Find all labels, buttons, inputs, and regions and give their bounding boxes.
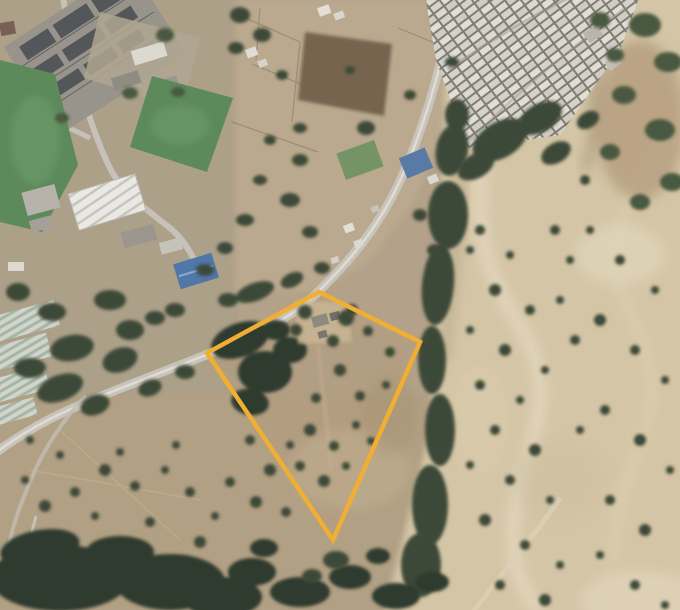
tree: [130, 481, 140, 491]
satellite-map-canvas: [0, 0, 680, 610]
tree: [645, 119, 675, 141]
tree: [185, 487, 195, 497]
tree: [651, 286, 659, 294]
tree: [253, 28, 271, 42]
satellite-image: [0, 0, 680, 610]
field-light-patch: [10, 95, 60, 185]
tree: [600, 144, 620, 160]
tree: [541, 366, 549, 374]
tree: [570, 335, 580, 345]
tree: [404, 90, 416, 100]
tree: [418, 326, 446, 394]
pale-patch: [515, 440, 605, 520]
building: [8, 262, 24, 271]
tree: [366, 548, 390, 564]
tree: [556, 296, 564, 304]
tree: [372, 583, 420, 609]
tree: [217, 242, 233, 254]
tree: [314, 262, 330, 274]
tree: [425, 394, 455, 466]
building: [0, 21, 16, 36]
tree: [230, 7, 250, 23]
tree: [529, 444, 541, 456]
tree: [171, 87, 185, 97]
tree: [302, 226, 318, 238]
tree: [576, 426, 584, 434]
tree: [280, 193, 300, 207]
tree: [499, 344, 511, 356]
tree: [490, 425, 500, 435]
tree: [318, 475, 330, 487]
tree: [270, 577, 330, 607]
tree: [55, 113, 69, 123]
tree: [38, 303, 66, 321]
tree: [304, 424, 316, 436]
tree: [539, 594, 551, 606]
tree: [630, 345, 640, 355]
tree: [327, 335, 339, 347]
tree: [14, 358, 46, 378]
tree: [413, 209, 427, 221]
tree: [311, 393, 321, 403]
tree: [629, 13, 661, 37]
tree: [94, 290, 126, 310]
tree: [329, 441, 339, 451]
tree: [250, 496, 262, 508]
tree: [357, 121, 375, 135]
tree: [495, 580, 505, 590]
tree: [525, 305, 535, 315]
tree: [630, 580, 640, 590]
tree: [116, 320, 144, 340]
tree: [466, 326, 474, 334]
tree: [253, 175, 267, 185]
tree: [39, 500, 51, 512]
tree: [546, 496, 554, 504]
tree: [56, 451, 64, 459]
tree: [334, 364, 346, 376]
tree: [666, 466, 674, 474]
tree: [245, 435, 255, 445]
tree: [550, 225, 560, 235]
tree: [466, 246, 474, 254]
tree: [428, 181, 468, 249]
tree: [594, 314, 606, 326]
tree: [302, 569, 322, 583]
tree: [385, 347, 395, 357]
tree: [276, 70, 288, 80]
tree: [228, 42, 244, 54]
tree: [86, 536, 154, 568]
tree: [218, 293, 238, 307]
tree: [99, 464, 111, 476]
tree: [298, 305, 312, 319]
tree: [516, 396, 524, 404]
tree: [21, 476, 29, 484]
tree: [479, 514, 491, 526]
tree: [323, 551, 349, 569]
tree: [175, 365, 195, 379]
tree: [445, 57, 459, 67]
tree: [566, 256, 574, 264]
tree: [165, 303, 185, 317]
tree: [580, 175, 590, 185]
tree: [161, 466, 169, 474]
tree: [606, 48, 624, 62]
tree: [590, 12, 610, 28]
tree: [415, 572, 449, 592]
tree: [264, 464, 276, 476]
tree: [605, 495, 615, 505]
tree: [639, 524, 651, 536]
tree: [475, 380, 485, 390]
tree: [600, 405, 610, 415]
tree: [250, 539, 278, 557]
tree: [172, 441, 180, 449]
tree: [145, 311, 165, 325]
tree: [6, 283, 30, 301]
tree: [70, 487, 80, 497]
tree: [489, 284, 501, 296]
tree: [382, 381, 390, 389]
tree: [286, 441, 294, 449]
tree: [475, 225, 485, 235]
tree: [661, 601, 669, 609]
tree: [293, 123, 307, 133]
tree: [122, 87, 138, 99]
tree: [281, 507, 291, 517]
tree: [196, 264, 214, 276]
tree: [292, 154, 308, 166]
tree: [556, 561, 564, 569]
tree: [630, 194, 650, 210]
tree: [363, 326, 373, 336]
tree: [586, 226, 594, 234]
tree: [352, 421, 360, 429]
tree: [211, 512, 219, 520]
tree: [634, 434, 646, 446]
tree: [228, 558, 276, 586]
tree: [355, 391, 365, 401]
tree: [194, 536, 206, 548]
tree: [661, 376, 669, 384]
tree: [91, 512, 99, 520]
tree: [156, 28, 174, 42]
tree: [412, 465, 448, 545]
tree: [116, 448, 124, 456]
tree: [345, 66, 355, 74]
tree: [236, 214, 254, 226]
tree: [506, 251, 514, 259]
tree: [505, 475, 515, 485]
tree: [520, 540, 530, 550]
tree: [145, 517, 155, 527]
tree: [225, 477, 235, 487]
tree: [615, 255, 625, 265]
field-light-patch: [150, 105, 210, 145]
tree: [466, 461, 474, 469]
tree: [264, 135, 276, 145]
tree: [295, 461, 305, 471]
tree: [342, 462, 350, 470]
tree: [26, 436, 34, 444]
tree: [290, 324, 302, 336]
tree: [612, 86, 636, 104]
tree: [596, 551, 604, 559]
